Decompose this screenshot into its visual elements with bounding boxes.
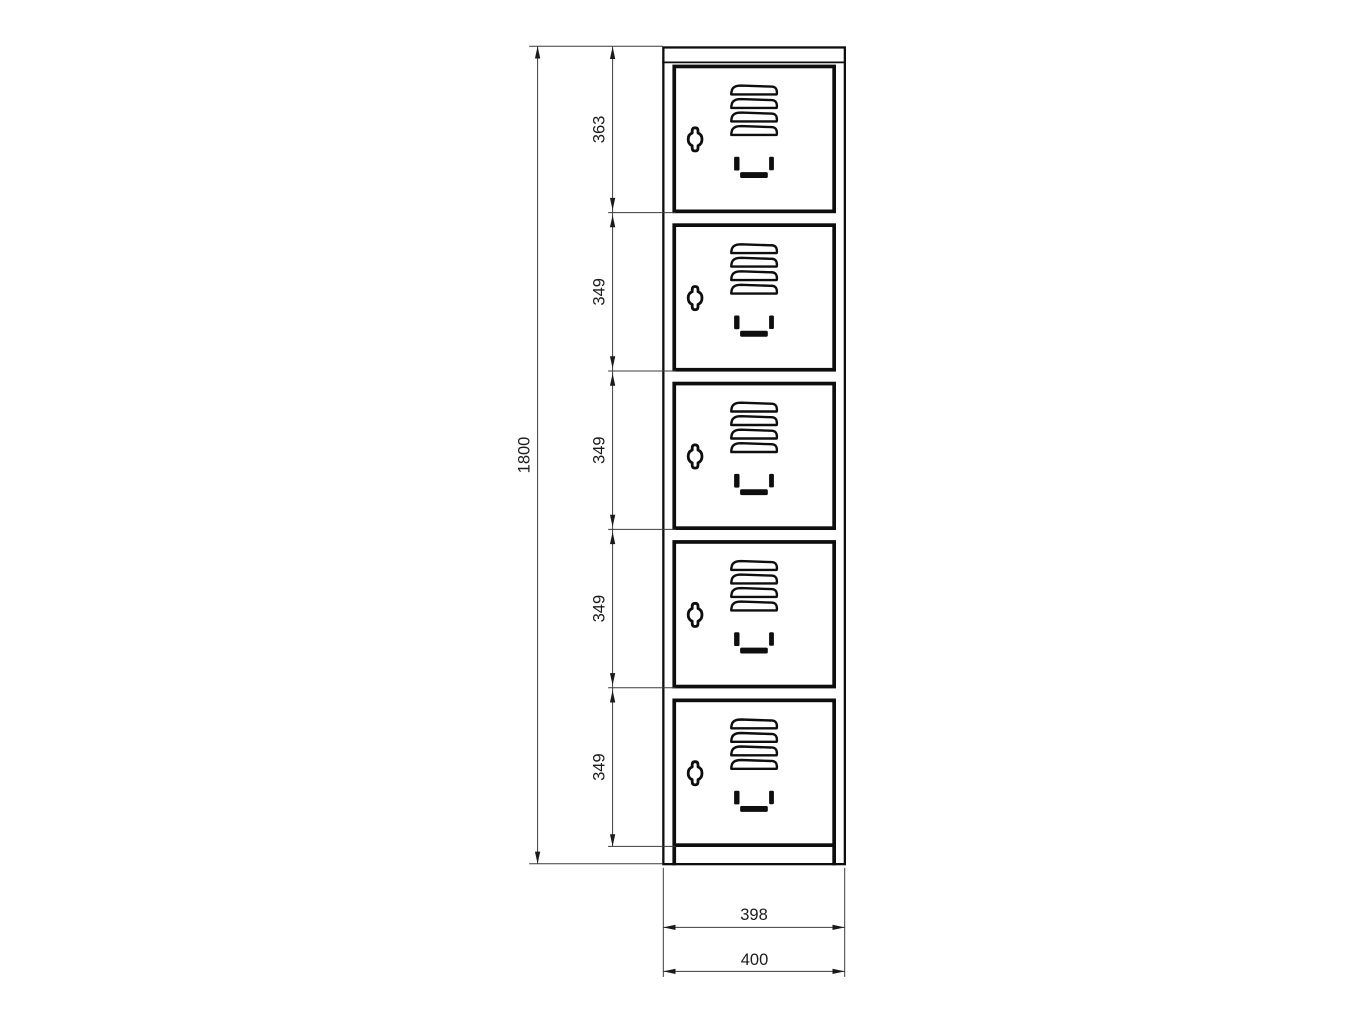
svg-text:349: 349	[590, 753, 608, 781]
svg-text:400: 400	[741, 951, 769, 969]
svg-text:349: 349	[590, 595, 608, 623]
svg-text:1800: 1800	[515, 437, 533, 474]
svg-text:349: 349	[590, 278, 608, 306]
svg-text:349: 349	[590, 436, 608, 464]
svg-text:398: 398	[740, 906, 768, 924]
svg-text:363: 363	[590, 116, 608, 144]
